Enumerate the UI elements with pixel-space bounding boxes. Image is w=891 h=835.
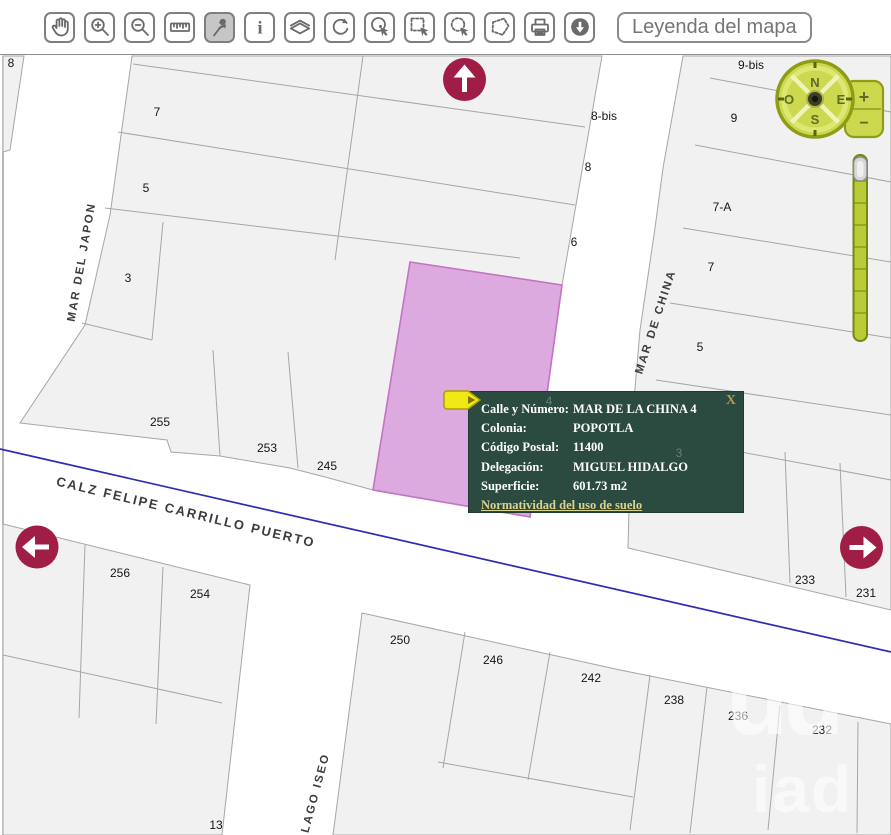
popup-label: Colonia: bbox=[481, 419, 573, 438]
popup-value: 11400 bbox=[573, 438, 604, 457]
zoom-out-button[interactable] bbox=[124, 12, 155, 43]
compass-south-label: S bbox=[811, 112, 820, 127]
popup-value: 601.73 m2 bbox=[573, 477, 627, 496]
measure-button[interactable] bbox=[164, 12, 195, 43]
download-button[interactable] bbox=[564, 12, 595, 43]
parcel-label: 6 bbox=[571, 235, 578, 249]
pan-left-button[interactable] bbox=[16, 526, 59, 569]
popup-label: Superficie: bbox=[481, 477, 573, 496]
compass-zoom-out-button[interactable]: − bbox=[859, 115, 868, 132]
parcel-label: 13 bbox=[209, 818, 222, 832]
select-circle-button[interactable] bbox=[444, 12, 475, 43]
select-polygon-button[interactable] bbox=[484, 12, 515, 43]
zoom-slider[interactable] bbox=[854, 155, 868, 341]
parcel-label: 238 bbox=[664, 693, 684, 707]
parcel-label: 256 bbox=[110, 566, 130, 580]
close-icon[interactable]: X bbox=[726, 393, 736, 409]
watermark-top: uu bbox=[726, 648, 839, 750]
popup-value: MAR DE LA CHINA 4 bbox=[573, 400, 697, 419]
parcel-label: 9-bis bbox=[738, 58, 764, 72]
compass-west-label: O bbox=[784, 92, 794, 107]
map-application: i Leyenda del mapa bbox=[0, 0, 891, 835]
circle-point-cursor-icon bbox=[368, 15, 392, 39]
compass-zoom-in-button[interactable]: + bbox=[859, 87, 870, 107]
dashed-rectangle-cursor-icon bbox=[408, 15, 432, 39]
parcel-label: 255 bbox=[150, 415, 170, 429]
parcel-label: 233 bbox=[795, 573, 815, 587]
hand-icon bbox=[48, 15, 72, 39]
dashed-polygon-icon bbox=[488, 15, 512, 39]
zoom-in-button[interactable] bbox=[84, 12, 115, 43]
parcel-label: 246 bbox=[483, 653, 503, 667]
magnifier-minus-icon bbox=[128, 15, 152, 39]
parcel-label: 5 bbox=[143, 181, 150, 195]
pan-up-button[interactable] bbox=[443, 58, 486, 101]
watermark-bottom: iad bbox=[752, 756, 853, 822]
print-button[interactable] bbox=[524, 12, 555, 43]
popup-label: Calle y Número: bbox=[481, 400, 573, 419]
parcel-label: 8 bbox=[585, 160, 592, 174]
layers-icon bbox=[288, 15, 312, 39]
normativity-link[interactable]: Normatividad del uso de suelo bbox=[481, 498, 642, 513]
pan-button[interactable] bbox=[44, 12, 75, 43]
parcel-label: 253 bbox=[257, 441, 277, 455]
info-icon: i bbox=[248, 15, 272, 39]
parcel-label: 242 bbox=[581, 671, 601, 685]
layers-button[interactable] bbox=[284, 12, 315, 43]
parcel-label: 254 bbox=[190, 587, 210, 601]
refresh-button[interactable] bbox=[324, 12, 355, 43]
compass-east-label: E bbox=[837, 92, 846, 107]
parcel-label: 8-bis bbox=[591, 109, 617, 123]
ruler-icon bbox=[168, 15, 192, 39]
parcel-label: 231 bbox=[856, 586, 876, 600]
compass-north-label: N bbox=[810, 75, 819, 90]
parcel-label: 245 bbox=[317, 459, 337, 473]
parcel-label-ghost: 4 bbox=[546, 394, 553, 408]
map-toolbar: i Leyenda del mapa bbox=[0, 0, 891, 55]
magnifier-plus-icon bbox=[88, 15, 112, 39]
parcel-label: 250 bbox=[390, 633, 410, 647]
svg-text:i: i bbox=[257, 18, 262, 38]
parcel-label: 8 bbox=[8, 56, 15, 70]
parcel-label: 7 bbox=[708, 260, 715, 274]
pin-button[interactable] bbox=[204, 12, 235, 43]
popup-label: Código Postal: bbox=[481, 438, 573, 457]
parcel-label: 5 bbox=[697, 340, 704, 354]
parcel-label-ghost: 3 bbox=[676, 446, 683, 460]
compass-rose[interactable]: N S O E bbox=[777, 61, 853, 137]
refresh-icon bbox=[328, 15, 352, 39]
pushpin-icon bbox=[208, 15, 232, 39]
parcel-info-popup: X Calle y Número:MAR DE LA CHINA 4 Colon… bbox=[468, 391, 744, 513]
info-button[interactable]: i bbox=[244, 12, 275, 43]
dashed-circle-cursor-icon bbox=[448, 15, 472, 39]
legend-button[interactable]: Leyenda del mapa bbox=[617, 12, 812, 43]
select-rectangle-button[interactable] bbox=[404, 12, 435, 43]
parcel-label: 3 bbox=[125, 271, 132, 285]
parcel-label: 9 bbox=[731, 111, 738, 125]
printer-icon bbox=[528, 15, 552, 39]
download-icon bbox=[568, 15, 592, 39]
popup-label: Delegación: bbox=[481, 458, 573, 477]
parcel-label: 7-A bbox=[713, 200, 732, 214]
pan-right-button[interactable] bbox=[840, 526, 883, 569]
select-point-button[interactable] bbox=[364, 12, 395, 43]
parcel-label: 7 bbox=[154, 105, 161, 119]
popup-value: MIGUEL HIDALGO bbox=[573, 458, 688, 477]
popup-value: POPOTLA bbox=[573, 419, 633, 438]
